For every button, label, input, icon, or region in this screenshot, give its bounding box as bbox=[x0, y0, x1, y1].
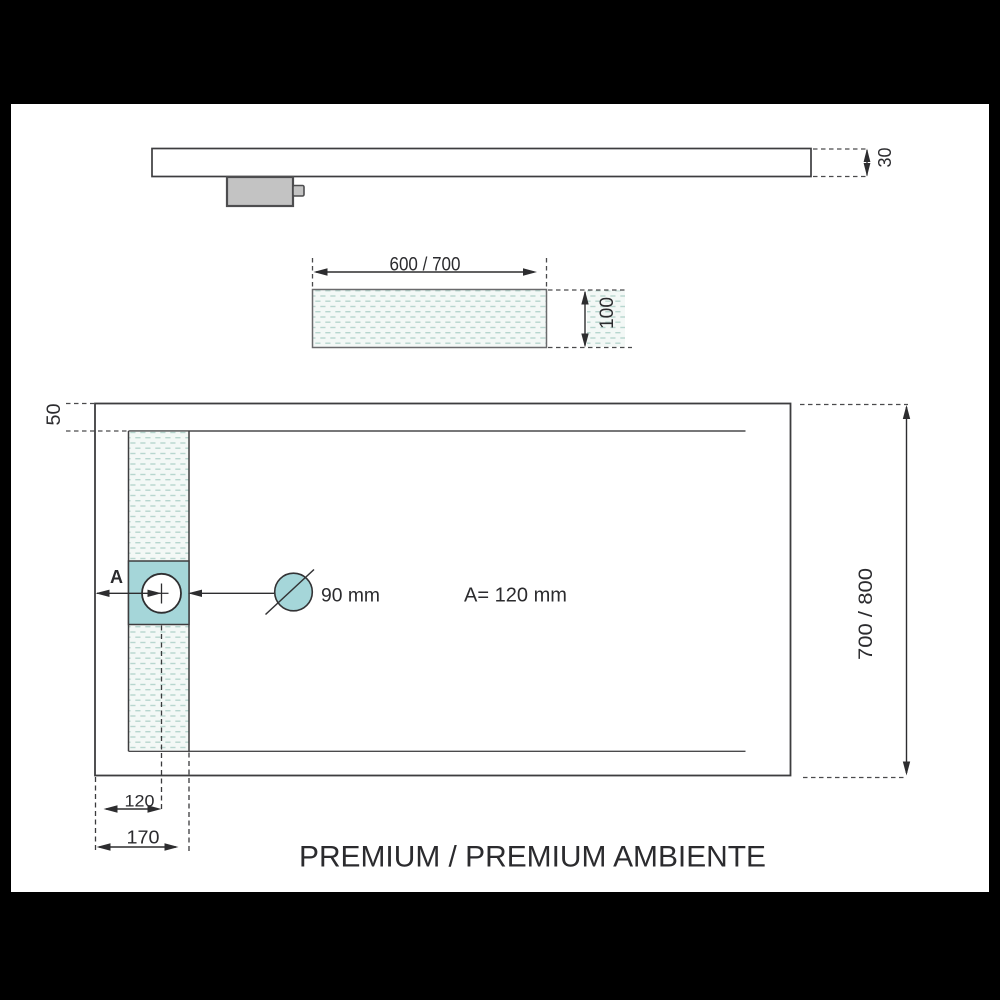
svg-text:A: A bbox=[110, 567, 123, 587]
svg-text:120: 120 bbox=[125, 792, 155, 811]
svg-text:50: 50 bbox=[44, 404, 65, 426]
svg-text:600 / 700: 600 / 700 bbox=[390, 255, 461, 276]
svg-text:170: 170 bbox=[127, 828, 160, 848]
svg-text:PREMIUM / PREMIUM AMBIENTE: PREMIUM / PREMIUM AMBIENTE bbox=[299, 841, 766, 874]
svg-text:700 / 800: 700 / 800 bbox=[855, 568, 877, 660]
svg-text:A= 120 mm: A= 120 mm bbox=[464, 585, 567, 607]
svg-text:90 mm: 90 mm bbox=[321, 586, 380, 607]
svg-text:30: 30 bbox=[874, 148, 895, 168]
svg-text:100: 100 bbox=[597, 297, 618, 329]
